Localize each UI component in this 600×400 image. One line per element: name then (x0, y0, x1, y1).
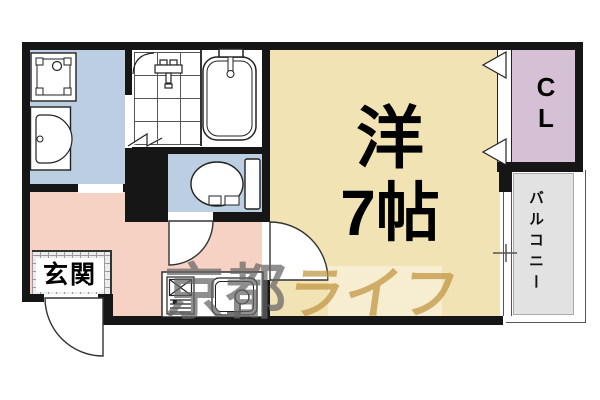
watermark: 京都ライフ (164, 262, 459, 325)
front-door-arc (45, 298, 103, 356)
washing-machine-icon (31, 53, 76, 101)
room-size-text: 7帖 (280, 176, 500, 250)
bathtub-icon (203, 49, 256, 140)
vanity-sink-icon (31, 107, 73, 170)
toilet-icon (191, 159, 260, 209)
closet-door-triangle-top (483, 52, 506, 78)
closet-letter-c: C (531, 72, 561, 103)
bathroom-folding-door-icon (128, 134, 162, 146)
floor-plan: 玄関 (0, 0, 600, 400)
shower-mixer-icon (133, 53, 182, 88)
closet-letter-l: L (531, 103, 561, 134)
closet-label: C L (531, 72, 561, 134)
watermark-text-right: ライフ (284, 263, 464, 325)
watermark-text-left: 京都 (164, 259, 288, 326)
balcony-label: バルコニー (524, 190, 546, 320)
room-type-text: 洋 (280, 102, 500, 176)
main-room-label: 洋 7帖 (280, 102, 500, 250)
